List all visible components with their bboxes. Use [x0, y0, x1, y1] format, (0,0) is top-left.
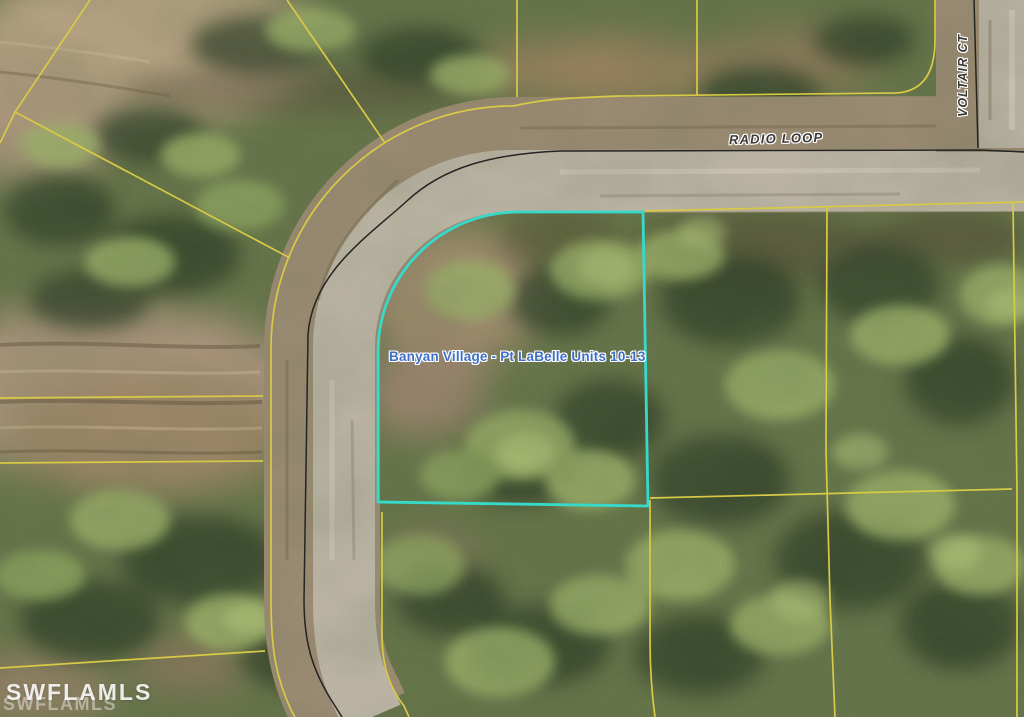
aerial-parcel-map-image: RADIO LOOP VOLTAIR CT Banyan Village - P… — [0, 0, 1024, 717]
aerial-basemap — [0, 0, 1024, 717]
texture-overlay — [0, 0, 1024, 717]
